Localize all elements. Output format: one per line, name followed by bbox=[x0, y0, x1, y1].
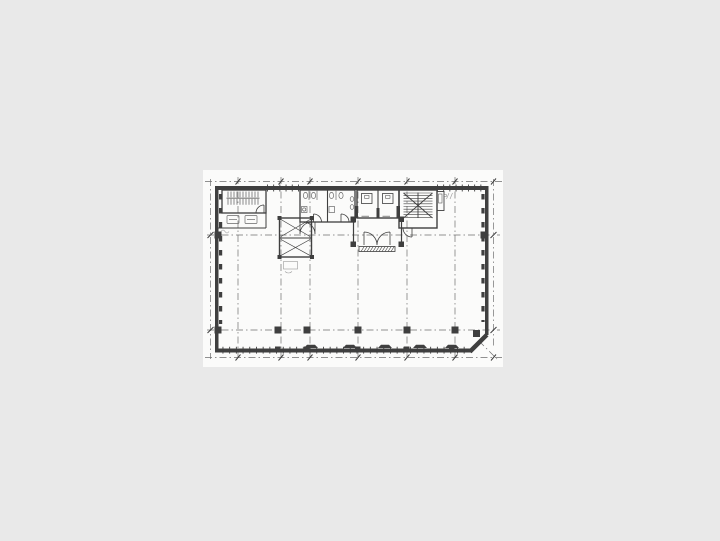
wall-east bbox=[485, 186, 489, 335]
column bbox=[215, 327, 222, 334]
plan-sheet bbox=[203, 170, 503, 367]
column bbox=[275, 347, 281, 353]
column bbox=[404, 327, 411, 334]
wall-south bbox=[215, 349, 471, 353]
column bbox=[452, 327, 459, 334]
column bbox=[275, 327, 282, 334]
column bbox=[481, 232, 488, 239]
column bbox=[304, 327, 311, 334]
column bbox=[404, 347, 410, 353]
column bbox=[215, 232, 222, 239]
column bbox=[355, 327, 362, 334]
floor-plan-canvas bbox=[0, 0, 720, 541]
column bbox=[473, 330, 480, 337]
screenshot-root bbox=[0, 0, 720, 541]
